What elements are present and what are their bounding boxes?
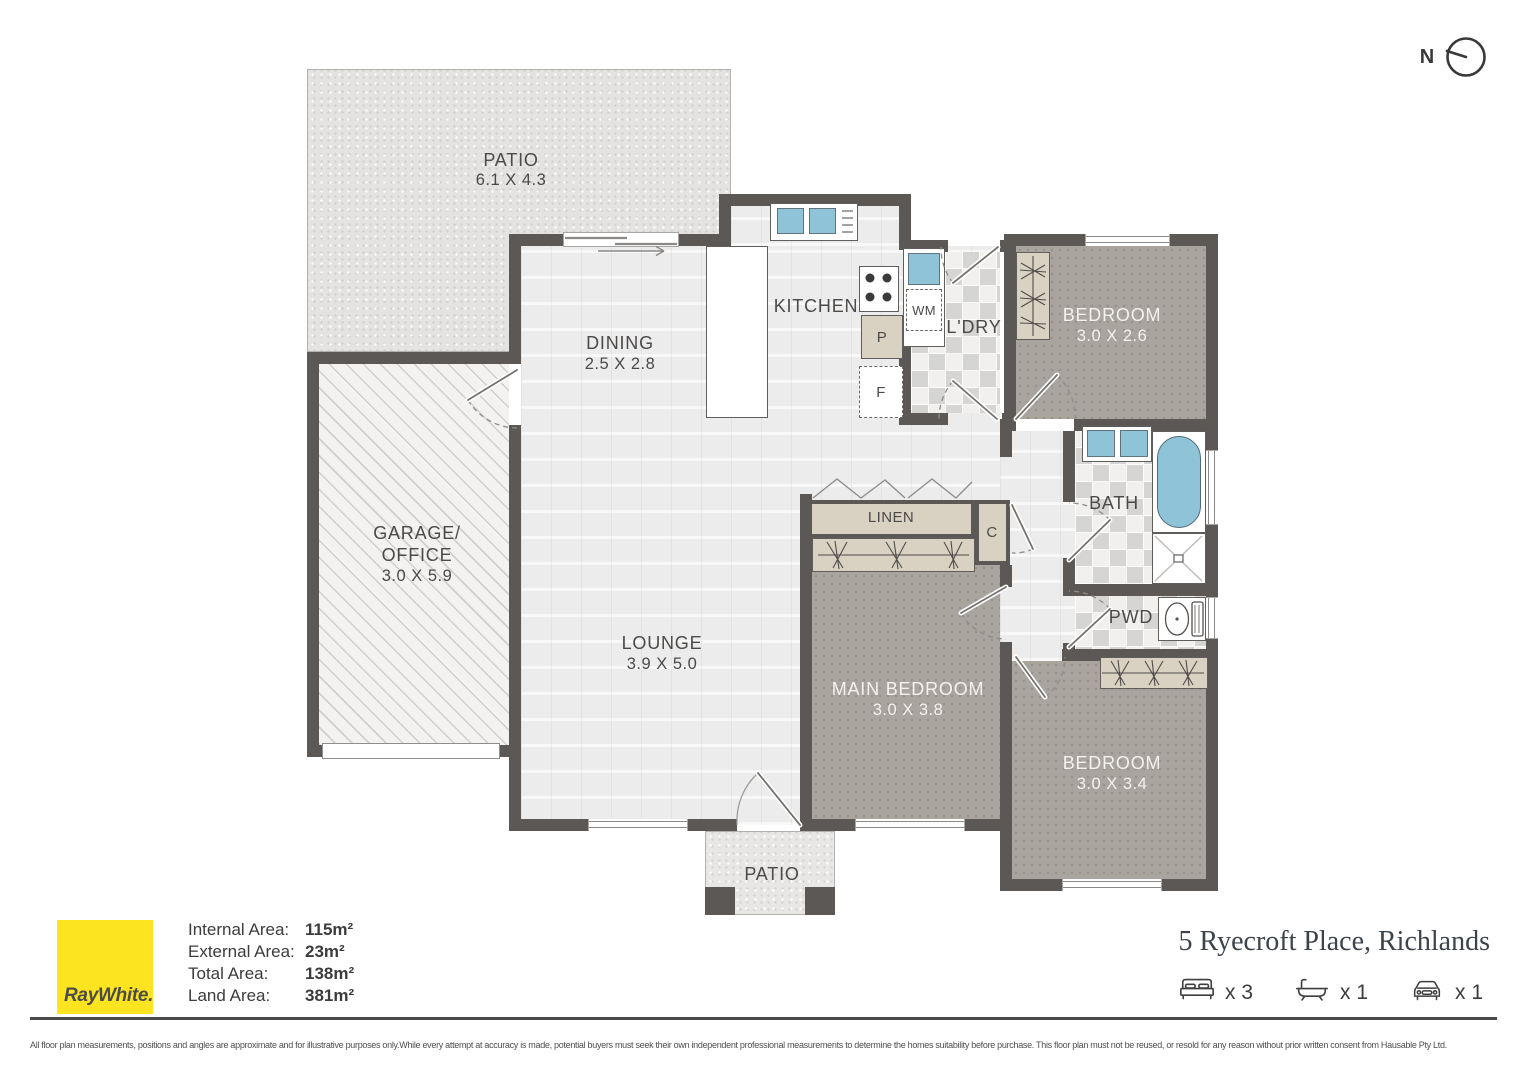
window bbox=[1206, 597, 1218, 639]
area-value: 115m² bbox=[305, 919, 353, 941]
bed-count: x 3 bbox=[1225, 981, 1253, 1005]
feature-baths: x 1 bbox=[1293, 976, 1368, 1009]
sliding-door bbox=[563, 232, 679, 247]
room-label-lounge: LOUNGE bbox=[622, 633, 703, 654]
feature-beds: x 3 bbox=[1178, 976, 1253, 1009]
area-label: Land Area: bbox=[188, 985, 305, 1007]
wall bbox=[307, 352, 521, 364]
area-row: Total Area: 138m² bbox=[188, 963, 354, 985]
property-address: 5 Ryecroft Place, Richlands bbox=[1179, 926, 1490, 958]
ray-white-logo-text: RayWhite. bbox=[57, 985, 153, 1014]
room-label-bedroom1: BEDROOM bbox=[1063, 305, 1162, 326]
area-value: 138m² bbox=[305, 963, 354, 985]
wall bbox=[800, 494, 812, 825]
north-compass-icon bbox=[1447, 39, 1485, 76]
car-count: x 1 bbox=[1455, 981, 1483, 1005]
bathtub bbox=[1157, 436, 1201, 528]
car-icon bbox=[1408, 976, 1446, 1009]
room-label-garage-2: OFFICE bbox=[382, 545, 453, 566]
bath-count: x 1 bbox=[1340, 981, 1368, 1005]
window bbox=[1085, 234, 1170, 246]
area-value: 381m² bbox=[305, 985, 354, 1007]
room-label-bath: BATH bbox=[1089, 493, 1139, 514]
area-summary: Internal Area: 115m² External Area: 23m²… bbox=[188, 919, 354, 1007]
area-row: Internal Area: 115m² bbox=[188, 919, 354, 941]
area-value: 23m² bbox=[305, 941, 345, 963]
room-label-linen: LINEN bbox=[868, 509, 914, 526]
wall bbox=[500, 745, 521, 757]
area-row: Land Area: 381m² bbox=[188, 985, 354, 1007]
wardrobe bbox=[812, 538, 975, 572]
room-dims-bedroom1: 3.0 X 2.6 bbox=[1077, 327, 1148, 346]
wall bbox=[1000, 565, 1012, 587]
north-label: N bbox=[1420, 46, 1434, 69]
floorplan-page: { "north_label": "N", "plan": { "rooms":… bbox=[0, 0, 1527, 1080]
room-label-main-bedroom: MAIN BEDROOM bbox=[832, 679, 985, 700]
wall bbox=[1063, 558, 1075, 596]
wall bbox=[1000, 642, 1012, 891]
shower bbox=[1152, 533, 1206, 584]
room-label-kitchen: KITCHEN bbox=[774, 296, 859, 317]
label-pantry: P bbox=[877, 329, 887, 346]
wall bbox=[899, 194, 911, 250]
window bbox=[1206, 450, 1218, 525]
room-dims-dining: 2.5 X 2.8 bbox=[585, 355, 656, 374]
floor-plan: N PATIO 6.1 X 4.3 DINING 2.5 X 2.8 KITCH… bbox=[0, 0, 1527, 1080]
window bbox=[588, 819, 688, 831]
wall bbox=[1162, 879, 1218, 891]
wall bbox=[1004, 879, 1062, 891]
kitchen-sink bbox=[777, 208, 804, 234]
wardrobe bbox=[1016, 252, 1050, 340]
wall bbox=[1004, 246, 1016, 419]
wall bbox=[307, 352, 319, 757]
room-label-patio-top: PATIO bbox=[483, 150, 538, 171]
area-label: Total Area: bbox=[188, 963, 305, 985]
ray-white-logo: RayWhite. bbox=[57, 920, 153, 1014]
wardrobe bbox=[1100, 657, 1208, 689]
patio-post bbox=[805, 887, 835, 915]
wall bbox=[1063, 584, 1218, 596]
toilet-nook bbox=[1158, 597, 1206, 641]
kitchen-sink bbox=[809, 208, 836, 234]
area-label: Internal Area: bbox=[188, 919, 305, 941]
bath-icon bbox=[1293, 976, 1331, 1009]
area-row: External Area: 23m² bbox=[188, 941, 354, 963]
room-label-patio-bottom: PATIO bbox=[744, 864, 799, 885]
wall bbox=[899, 413, 948, 425]
feature-cars: x 1 bbox=[1408, 976, 1483, 1009]
wall bbox=[307, 745, 322, 757]
wall bbox=[1000, 419, 1012, 457]
room-label-laundry: L'DRY bbox=[946, 317, 1001, 338]
room-dims-bedroom2: 3.0 X 3.4 bbox=[1077, 775, 1148, 794]
garage-door bbox=[322, 743, 500, 759]
room-dims-lounge: 3.9 X 5.0 bbox=[627, 655, 698, 674]
room-dims-main-bedroom: 3.0 X 3.8 bbox=[873, 701, 944, 720]
wall bbox=[1063, 431, 1075, 502]
laundry-tub bbox=[908, 253, 940, 285]
room-label-garage-1: GARAGE/ bbox=[373, 523, 461, 544]
wall bbox=[1206, 234, 1218, 450]
patio-post bbox=[705, 887, 735, 915]
stove bbox=[859, 266, 899, 312]
label-fridge: F bbox=[876, 384, 886, 401]
wall bbox=[1004, 234, 1085, 246]
room-label-pwd: PWD bbox=[1109, 607, 1153, 628]
wall bbox=[1063, 643, 1075, 661]
room-dims-patio-top: 6.1 X 4.3 bbox=[476, 171, 547, 190]
window bbox=[855, 819, 965, 831]
island-bench bbox=[706, 246, 768, 418]
wall bbox=[509, 425, 521, 831]
window bbox=[1062, 879, 1162, 891]
wall bbox=[509, 234, 521, 362]
disclaimer-text: All floor plan measurements, positions a… bbox=[30, 1040, 1520, 1050]
label-washing-machine: WM bbox=[912, 303, 936, 318]
vanity-basin bbox=[1120, 430, 1148, 457]
room-label-dining: DINING bbox=[586, 333, 654, 354]
room-dims-garage: 3.0 X 5.9 bbox=[382, 567, 453, 586]
room-label-bedroom2: BEDROOM bbox=[1063, 753, 1162, 774]
bed-icon bbox=[1178, 976, 1216, 1009]
footer-divider bbox=[30, 1017, 1497, 1020]
wall bbox=[688, 819, 737, 831]
vanity-basin bbox=[1087, 430, 1115, 457]
room-label-cupboard: C bbox=[986, 524, 997, 541]
area-label: External Area: bbox=[188, 941, 305, 963]
